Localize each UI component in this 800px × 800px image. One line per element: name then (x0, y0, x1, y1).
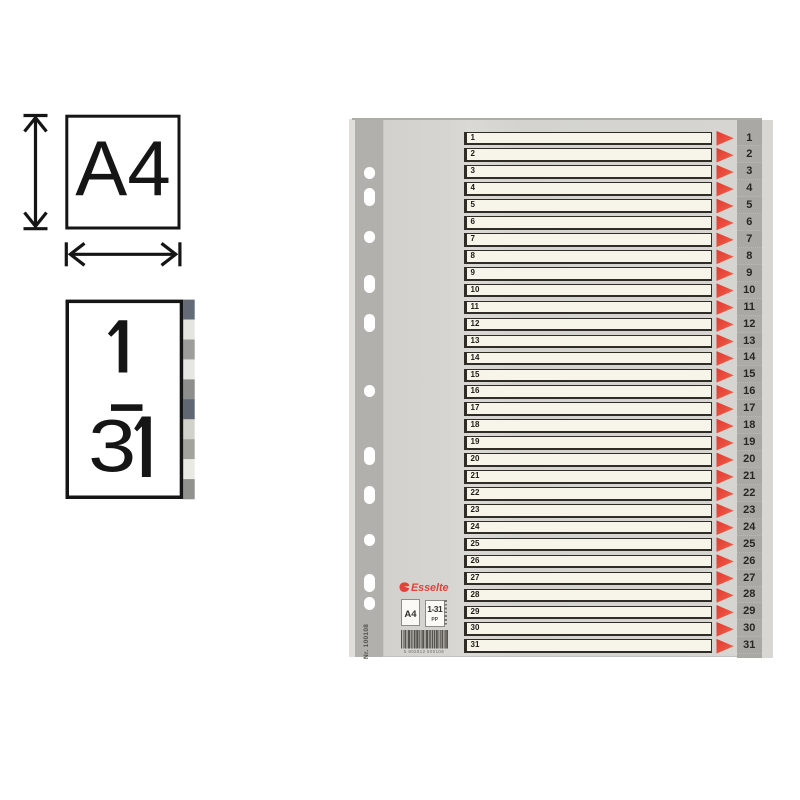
svg-text:A4: A4 (75, 124, 170, 212)
svg-text:Esselte: Esselte (411, 582, 449, 593)
svg-text:5 902812 500108: 5 902812 500108 (404, 649, 444, 654)
svg-text:3: 3 (88, 405, 136, 488)
